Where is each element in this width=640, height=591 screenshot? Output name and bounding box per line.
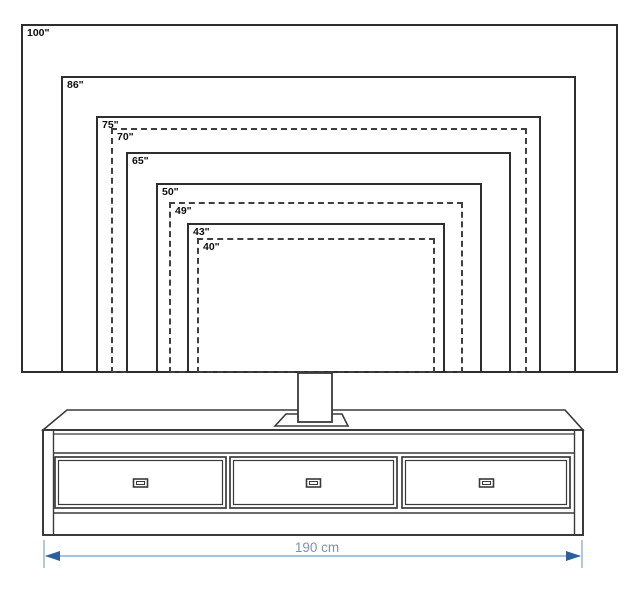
width-dimension: 190 cm: [44, 540, 582, 568]
dimension-label: 190 cm: [295, 540, 339, 555]
cabinet-front: [43, 430, 583, 535]
tv-stand-drawing: 190 cm: [0, 0, 640, 591]
tv-size-comparison-diagram: 100"86"75"70"65"50"49"43"40": [0, 0, 640, 591]
dimension-arrow-right-icon: [566, 551, 581, 561]
tv-pedestal: [298, 373, 332, 422]
dimension-arrow-left-icon: [45, 551, 60, 561]
